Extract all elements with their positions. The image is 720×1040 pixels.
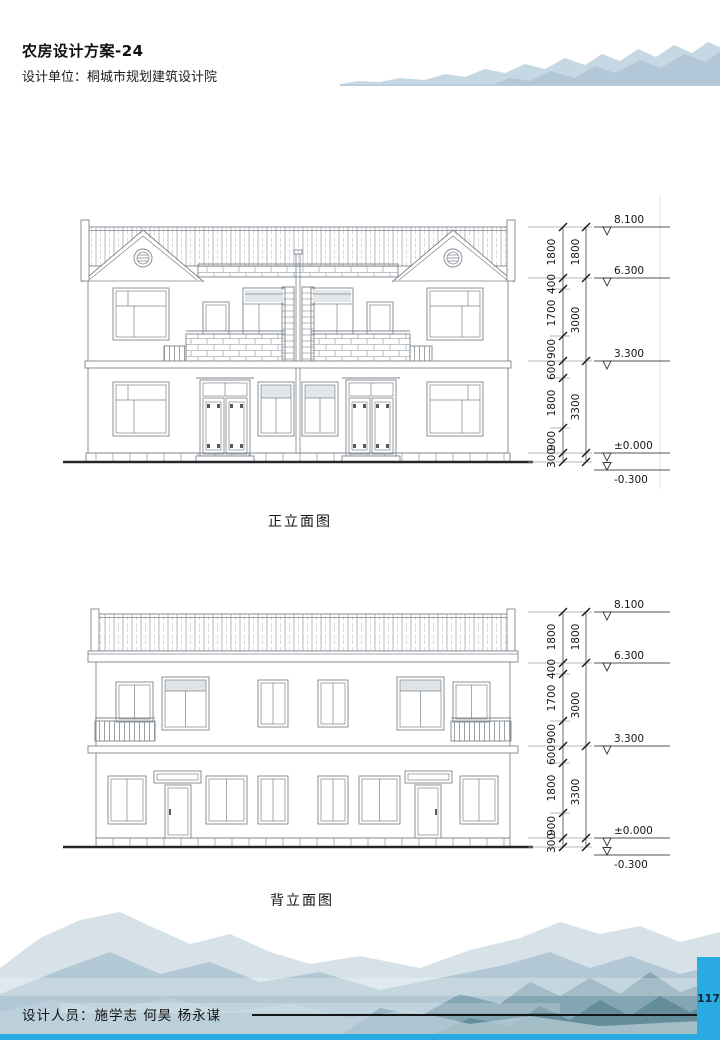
page-number: 117	[697, 992, 720, 1005]
rear-building-outline	[63, 609, 533, 847]
dim-label: 1800	[570, 239, 582, 266]
gable-vent-circle-left	[134, 249, 152, 267]
dim-label: 3300	[570, 394, 582, 421]
page-number-badge: 117	[697, 957, 720, 1040]
level-label: -0.300	[614, 859, 648, 871]
dim-label: 400	[546, 659, 558, 679]
dim-label: 1700	[546, 300, 558, 327]
dim-label: 1800	[570, 624, 582, 651]
dim-label: 900	[546, 339, 558, 359]
dim-label: 400	[546, 274, 558, 294]
level-label: -0.300	[614, 474, 648, 486]
dim-label: 600	[546, 360, 558, 380]
designers-credit: 设计人员：施学志 何昊 杨永谋	[22, 1004, 221, 1024]
page-title: 农房设计方案-24	[22, 40, 144, 61]
dim-label: 300	[546, 448, 558, 468]
level-label: ±0.000	[614, 440, 653, 452]
dim-label: 1800	[546, 390, 558, 417]
dim-label: 3000	[570, 692, 582, 719]
dim-label: 1800	[546, 624, 558, 651]
dim-label: 1800	[546, 775, 558, 802]
rear-dimension-stack: 8.100 6.300 3.300 ±0.000 -0.300 1800 400…	[528, 599, 670, 871]
level-label: 8.100	[614, 599, 644, 611]
mountain-watermark-top	[340, 38, 720, 88]
dim-label: 600	[546, 745, 558, 765]
dim-label: 300	[546, 833, 558, 853]
dim-label: 900	[546, 724, 558, 744]
footer-rule-line	[252, 1014, 698, 1016]
rear-elevation-drawing: 8.100 6.300 3.300 ±0.000 -0.300 1800 400…	[58, 579, 678, 874]
dim-label: 3000	[570, 307, 582, 334]
front-dimension-stack: 8.100 6.300 3.300 ±0.000 -0.300 1800 400…	[528, 214, 670, 486]
level-label: 6.300	[614, 265, 644, 277]
level-label: 3.300	[614, 733, 644, 745]
front-elevation-caption: 正立面图	[240, 511, 360, 531]
rear-elevation-caption: 背立面图	[242, 890, 362, 910]
front-building-outline	[63, 194, 660, 489]
design-unit-line: 设计单位：桐城市规划建筑设计院	[22, 66, 217, 85]
front-elevation-drawing: 8.100 6.300 3.300 ±0.000 -0.300 1800 400…	[58, 194, 678, 489]
dim-label: 1800	[546, 239, 558, 266]
footer-accent-bar	[0, 1034, 720, 1040]
level-label: ±0.000	[614, 825, 653, 837]
dim-label: 1700	[546, 685, 558, 712]
gable-vent-circle-right	[444, 249, 462, 267]
level-label: 8.100	[614, 214, 644, 226]
dim-label: 3300	[570, 779, 582, 806]
level-label: 6.300	[614, 650, 644, 662]
level-label: 3.300	[614, 348, 644, 360]
